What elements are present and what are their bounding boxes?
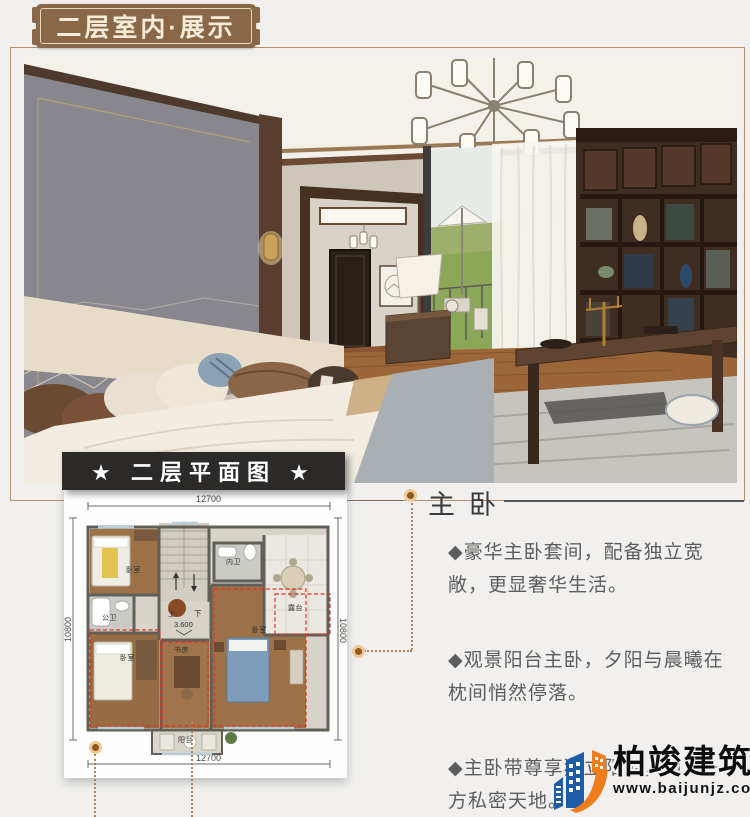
dimension-label-right: 10800 — [338, 618, 347, 643]
leader-line-master-horizontal — [364, 650, 412, 652]
room-label-public-bath: 公卫 — [102, 614, 117, 622]
callout-dot-master-plan — [352, 645, 365, 658]
shelf-vase — [680, 264, 692, 288]
floorplan-title: ★ 二层平面图 ★ — [91, 455, 316, 487]
bullet-item: ◆观景阳台主卧，夕阳与晨曦在枕间悄然停落。 — [448, 644, 724, 710]
dimension-label-top: 12700 — [196, 494, 221, 504]
brand-logo: 柏竣建筑 www.baijunjz.com — [552, 744, 750, 814]
interior-photo — [24, 58, 737, 483]
leader-line-bottom-center — [191, 722, 193, 817]
nightstand — [386, 310, 450, 364]
stair-label-down: 下 — [194, 609, 202, 618]
hallway-ceiling-light — [320, 208, 406, 224]
room-label-master-bedroom: 卧室 — [252, 625, 267, 634]
room-label-bedroom-tl: 卧室 — [126, 565, 141, 574]
wall-sconce — [258, 231, 284, 265]
alarm-clock — [446, 300, 458, 312]
shelf-vase — [633, 215, 647, 241]
stairwell — [159, 523, 209, 601]
page-background: 二层室内·展示 — [0, 0, 750, 817]
logo-website: www.baijunjz.com — [613, 780, 750, 797]
callout-dot-master-title — [404, 489, 417, 502]
stair-label-up: 上 — [168, 609, 176, 618]
master-title-rule — [504, 500, 744, 502]
patio-chair — [474, 308, 488, 330]
leader-line-bottom-left — [94, 754, 96, 817]
floorplan-drawing: 12700 10800 10800 12700 — [64, 490, 347, 778]
master-section-title: 主卧 — [428, 483, 510, 522]
logo-name: 柏竣建筑 — [613, 744, 750, 780]
shelf-plant — [598, 266, 614, 278]
section-badge: 二层室内·展示 — [36, 4, 256, 48]
logo-icon — [552, 744, 610, 814]
floorplan-card: 12700 10800 10800 12700 — [64, 490, 347, 778]
floorplan-title-bar: ★ 二层平面图 ★ — [62, 452, 345, 490]
leader-line-card-to-dot — [347, 500, 404, 501]
dimension-label-left: 10800 — [64, 617, 73, 642]
room-label-study: 书房 — [174, 645, 189, 654]
room-label-terrace: 露台 — [288, 603, 303, 612]
section-badge-label: 二层室内·展示 — [36, 4, 256, 48]
room-label-inner-bath: 内卫 — [226, 557, 241, 566]
leader-line-master-vertical — [411, 503, 413, 650]
bullet-item: ◆豪华主卧套间，配备独立宽敞，更显奢华生活。 — [448, 536, 724, 602]
room-label-bedroom-bl: 卧室 — [120, 653, 135, 662]
porcelain-stool — [666, 395, 718, 425]
callout-dot-bottom-left — [89, 741, 102, 754]
elevation-label: 3.600 — [174, 620, 193, 629]
